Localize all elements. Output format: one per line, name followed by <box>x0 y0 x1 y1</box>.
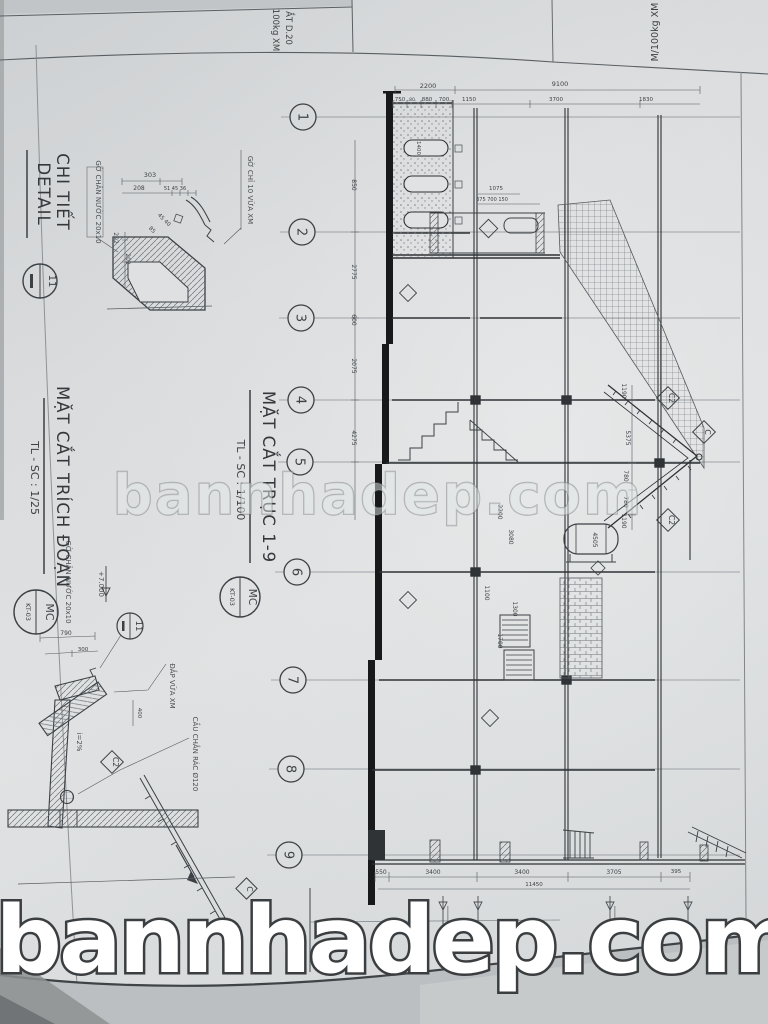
dim-label: 850 <box>350 179 357 191</box>
excerpt-scale: TL - SC : 1/25 <box>28 440 41 515</box>
grid-bubble-number: 9 <box>280 851 295 859</box>
roof-tag-upper-text: C2 <box>667 393 676 403</box>
dim-label: 1075 <box>489 186 503 192</box>
dim-label: 1700 <box>496 633 503 648</box>
brick-terrace <box>560 578 602 678</box>
dim-label: 3080 <box>507 529 514 544</box>
dim-label: 395 <box>671 869 682 875</box>
slab-section <box>8 810 198 827</box>
dim-label: 750 <box>395 97 406 103</box>
grid-bubble-number: 8 <box>282 765 297 773</box>
dim-label: 600 <box>350 314 357 326</box>
grid-bubble-number: 3 <box>292 314 307 322</box>
dim-label: 202 <box>112 232 119 244</box>
main-ref-bottom: KT-03 <box>228 588 236 606</box>
grid-bubble-number: 2 <box>293 228 308 236</box>
dim-label: 3400 <box>425 869 440 876</box>
dim-label: 1300 <box>511 601 518 616</box>
excerpt-water-drip-text: GỜ CHÂN NƯỚC 20x10 <box>64 540 73 623</box>
grid-bubble-number: 7 <box>284 676 299 684</box>
detail-mortar-trim-text: GỜ CHỈ 10 VỮA XM <box>246 156 255 224</box>
dim-label: 790 <box>60 630 72 637</box>
excerpt-slope-text: i=2% <box>75 733 83 752</box>
dim-label: 3700 <box>549 97 563 103</box>
grid-bubble-number: 4 <box>292 396 307 404</box>
detail-bubble-bar <box>30 274 33 288</box>
dim-label: 300 <box>78 647 89 653</box>
excerpt-mortar-text: ĐẮP VỮA XM <box>168 663 178 708</box>
center-watermark: bannhadep.com <box>113 463 644 528</box>
dim-label: 208 <box>133 185 145 192</box>
dim-label: 9100 <box>552 80 569 88</box>
dim-label: 1400 <box>415 141 421 155</box>
dim-label: 1100 <box>483 585 490 600</box>
photo-left-edge <box>0 0 4 520</box>
dim-label: 375 700 150 <box>476 197 508 203</box>
dim-label: 400 <box>136 708 142 719</box>
dim-label: 2200 <box>420 82 437 90</box>
excerpt-c2-text: C2 <box>111 757 120 767</box>
excerpt-ref-top: MC <box>43 603 56 620</box>
excerpt-detail-bubble-number: 11 <box>133 621 143 632</box>
blueprint-photo: ẮT D.20 100kg XM M/100kg XM CHI TIẾT DET… <box>0 0 768 1024</box>
excerpt-ref-bottom: KT-03 <box>24 603 32 621</box>
dim-label: 4275 <box>350 430 357 445</box>
detail-title-vn: CHI TIẾT <box>53 153 74 231</box>
dim-label: 5375 <box>624 430 631 445</box>
dim-label: 2075 <box>350 358 357 373</box>
grid-bubble-number: 1 <box>294 113 309 121</box>
dim-label: 550 <box>375 869 387 876</box>
dim-label: 1830 <box>639 97 653 103</box>
detail-title-en: DETAIL <box>34 162 53 225</box>
adjacent-col1-line2: 100kg XM <box>270 9 280 51</box>
drain-pipe-section <box>61 791 74 804</box>
bottom-watermark: bannhadep.com <box>0 886 768 994</box>
dim-label: 880 <box>422 97 433 103</box>
dim-label: 80 <box>409 97 415 103</box>
grid-bubble-number: 6 <box>288 568 303 576</box>
detail-water-drip-text: GỜ CHÂN NƯỚC 20x10 <box>94 160 103 243</box>
dim-label: 51 45 36 <box>164 186 186 192</box>
main-ref-top: MC <box>246 589 258 605</box>
arched-balustrade <box>391 100 462 258</box>
dim-label: 700 <box>439 97 450 103</box>
dim-label: 1150 <box>462 97 476 103</box>
roof-tag-mid-text: C <box>703 429 712 434</box>
dim-label: 4505 <box>591 532 598 547</box>
roof-tag-lower-text: C2 <box>667 515 676 525</box>
dim-label: 202 <box>124 253 131 265</box>
dim-label: 303 <box>144 171 156 179</box>
detail-bubble-number: 11 <box>46 275 57 288</box>
dim-label: 3400 <box>514 869 529 876</box>
dim-label: 2775 <box>350 264 357 279</box>
adjacent-col2: M/100kg XM <box>650 3 661 62</box>
dim-label: 1190 <box>620 383 627 398</box>
excerpt-level-text: +7.000 <box>97 571 105 597</box>
dim-label: 3705 <box>606 869 621 876</box>
excerpt-gravel-text: CẦU CHẮN RÁC Ø120 <box>191 717 201 792</box>
